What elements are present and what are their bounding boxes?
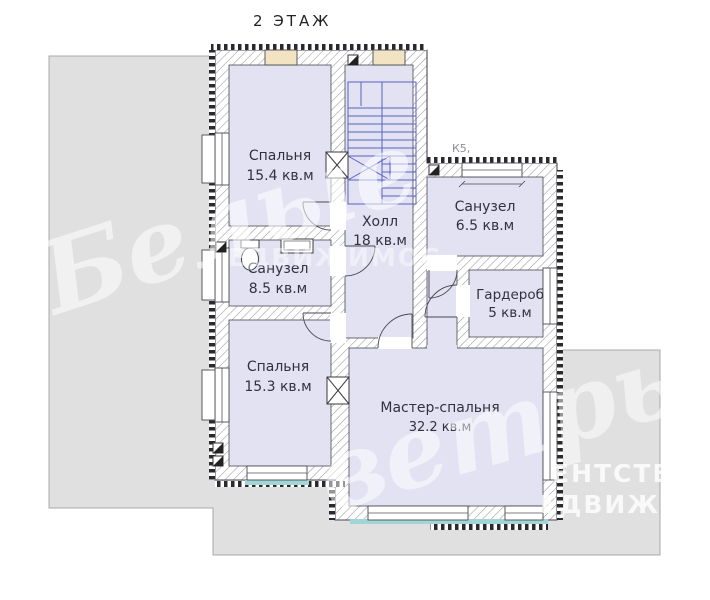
label-bedroom2-name: Спальня (247, 359, 309, 375)
label-bedroom2-area: 15.3 кв.м (244, 379, 311, 395)
window-top-2 (373, 50, 405, 65)
room-master-nook (427, 270, 457, 349)
window-top-1 (265, 50, 297, 65)
room-nook-join (427, 345, 457, 351)
section-label: К5, (452, 142, 470, 155)
insulation-bottom-master (430, 524, 548, 530)
watermark-caps-faint: ЕДВИЖИМОС (228, 243, 441, 272)
door-opening-bedroom2 (330, 313, 346, 343)
section-marker-icon (348, 55, 358, 65)
windowsill-left-3 (202, 370, 215, 420)
section-marker-icon (213, 443, 223, 453)
watermark-caps-1: ЕНТСТВО (552, 459, 697, 488)
room-bathroom1 (427, 177, 543, 256)
door-opening-wardrobe (456, 285, 470, 317)
sill-bedroom2 (245, 480, 309, 485)
insulation-top-right (427, 157, 557, 163)
section-marker-icon (429, 165, 439, 175)
page-title: 2 ЭТАЖ (253, 12, 331, 30)
floor-plan-canvas: 2 ЭТАЖ (0, 0, 710, 600)
insulation-top (211, 44, 427, 50)
label-wardrobe-area: 5 кв.м (488, 305, 531, 321)
door-opening-master (378, 337, 412, 349)
label-wardrobe-name: Гардероб (476, 287, 544, 303)
room-wardrobe (469, 270, 543, 337)
watermark-caps-2: ЕДВИЖИМО (540, 490, 710, 519)
label-bathroom2-area: 8.5 кв.м (249, 281, 307, 297)
section-marker-icon (213, 456, 223, 466)
label-bathroom1-area: 6.5 кв.м (456, 218, 514, 234)
label-bathroom1-name: Санузел (455, 199, 516, 215)
